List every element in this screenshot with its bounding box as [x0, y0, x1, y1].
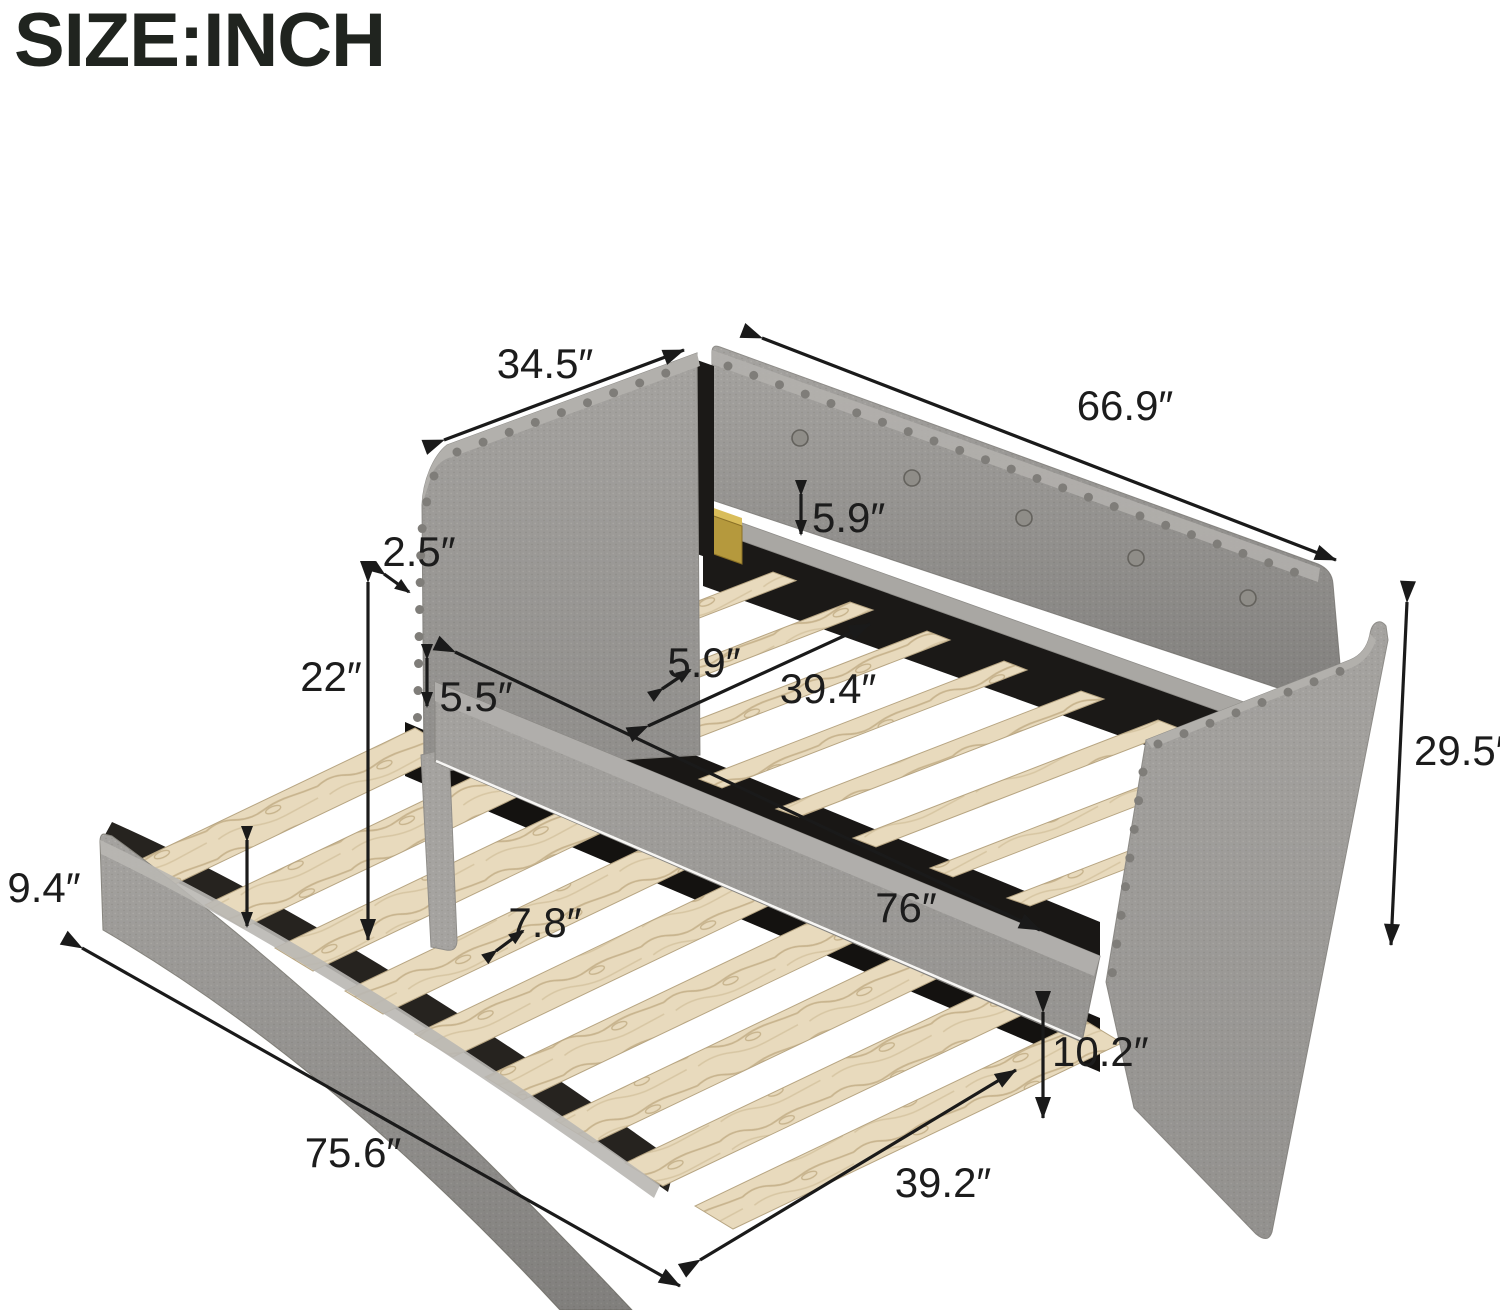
svg-text:22″: 22″: [300, 653, 362, 700]
svg-text:75.6″: 75.6″: [305, 1129, 402, 1176]
svg-text:2.5″: 2.5″: [382, 528, 455, 575]
svg-text:29.5″: 29.5″: [1414, 727, 1500, 774]
daybed-dimension-diagram: SIZE:INCH: [0, 0, 1500, 1310]
dim-overall-height: 29.5″: [1391, 602, 1500, 945]
dim-back-rail-height: 5.9″: [801, 494, 885, 541]
svg-text:34.5″: 34.5″: [497, 340, 594, 387]
svg-text:5.9″: 5.9″: [667, 639, 740, 686]
svg-text:39.2″: 39.2″: [895, 1159, 992, 1206]
svg-text:66.9″: 66.9″: [1077, 382, 1174, 429]
svg-text:7.8″: 7.8″: [508, 899, 581, 946]
dim-trundle-slat-gap: 7.8″: [496, 899, 582, 951]
svg-text:5.5″: 5.5″: [439, 673, 512, 720]
svg-text:9.4″: 9.4″: [7, 864, 80, 911]
svg-text:5.9″: 5.9″: [812, 494, 885, 541]
dim-upper-slat-gap: 5.9″: [662, 639, 741, 689]
page-title: SIZE:INCH: [14, 0, 385, 83]
dim-trundle-width: 39.2″: [700, 1070, 1016, 1260]
svg-text:10.2″: 10.2″: [1052, 1028, 1149, 1075]
svg-text:76″: 76″: [875, 884, 937, 931]
diagram-canvas: SIZE:INCH: [0, 0, 1500, 1310]
svg-text:39.4″: 39.4″: [780, 665, 877, 712]
